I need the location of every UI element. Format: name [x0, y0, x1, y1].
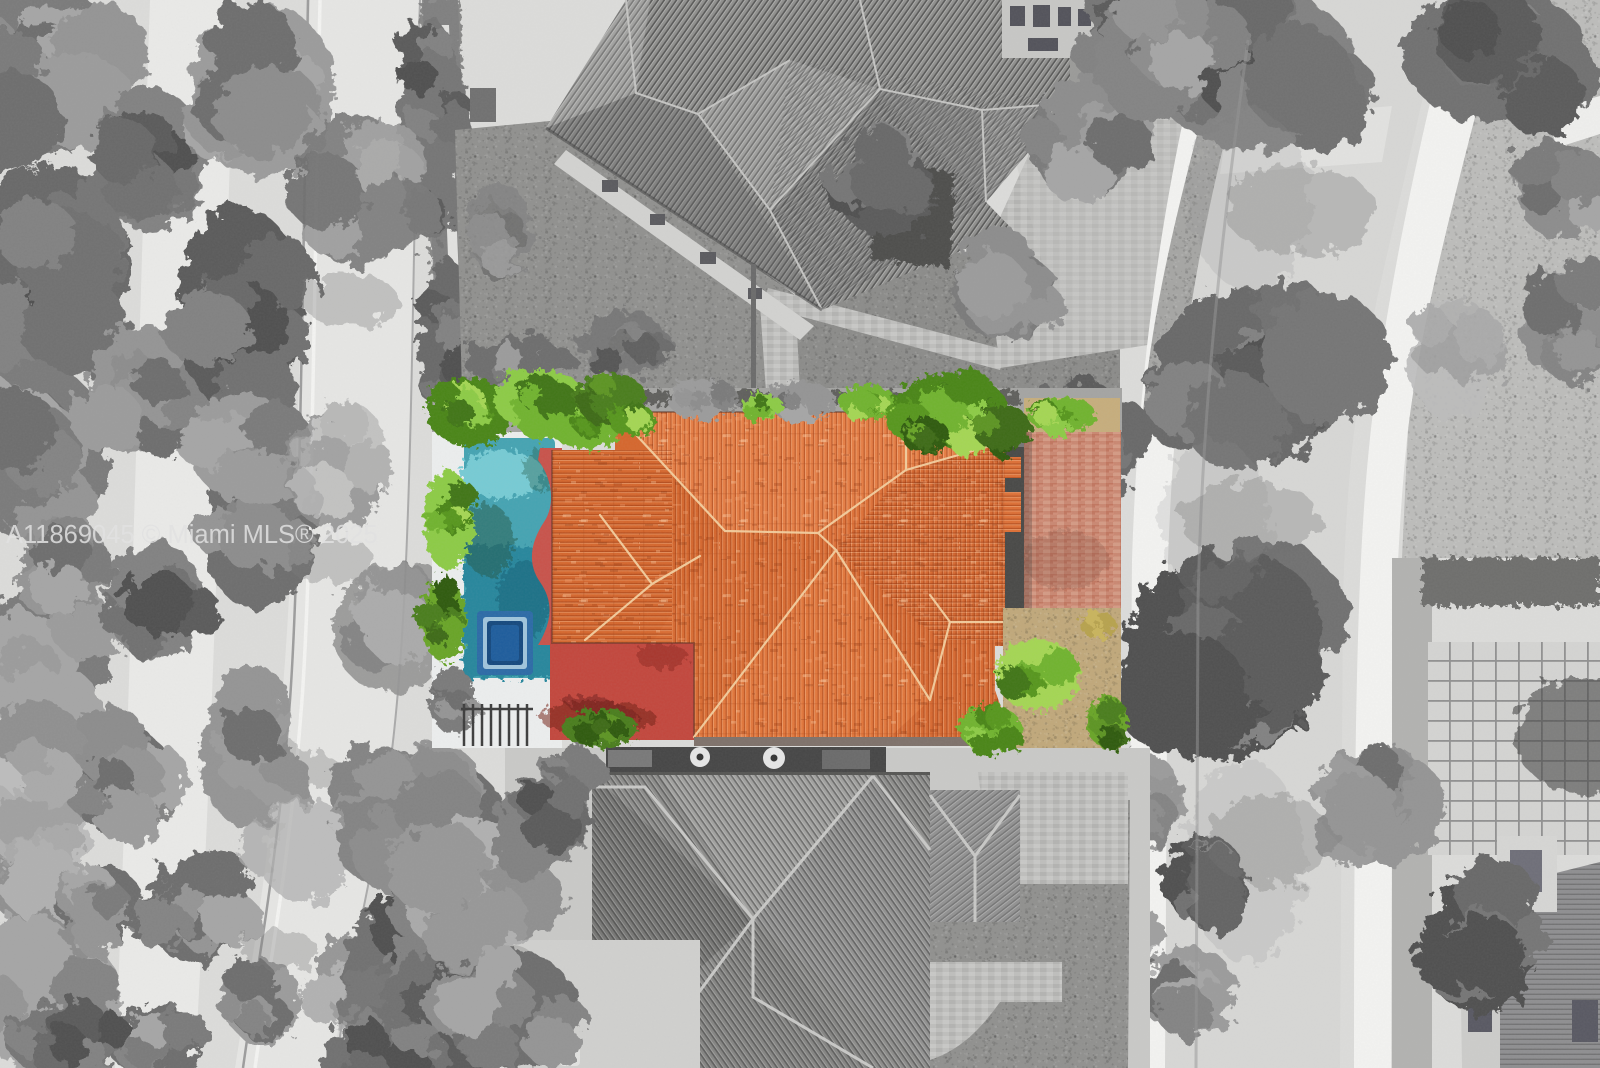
svg-text:A11869045 © Miami MLS® 2025: A11869045 © Miami MLS® 2025	[6, 521, 378, 549]
